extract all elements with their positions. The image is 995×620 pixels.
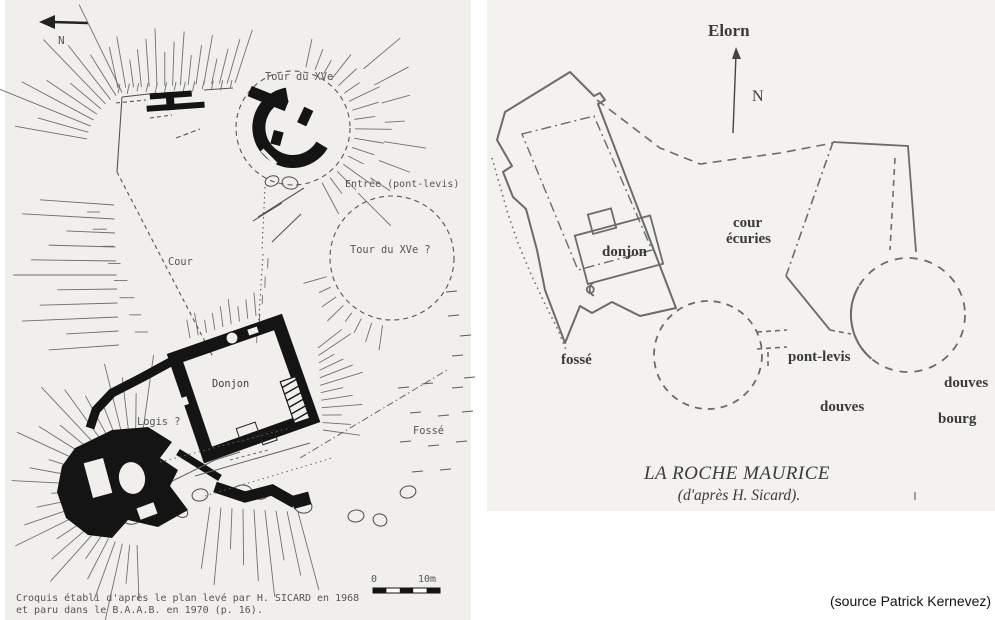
label-douves-bourg-line2: bourg — [938, 411, 977, 427]
label-tour-xve-q: Tour du XVe ? — [350, 244, 431, 256]
label-logis: Logis ? — [137, 416, 180, 428]
right-plan: Elorn N donjon — [487, 0, 995, 511]
label-donjon-right: donjon — [602, 244, 648, 260]
label-cour-line2: écuries — [726, 231, 771, 247]
left-plan: N — [0, 0, 475, 620]
label-douves-bourg-line1: douves — [944, 375, 988, 391]
label-cour: Cour — [168, 256, 193, 268]
north-label-right: N — [752, 88, 764, 105]
caption-line1: Croquis établi d'après le plan levé par … — [16, 592, 359, 604]
label-douves: douves — [820, 399, 864, 415]
north-label-left: N — [58, 34, 65, 47]
plan-subtitle: (d'après H. Sicard). — [678, 487, 800, 504]
river-label: Elorn — [708, 21, 750, 40]
caption-line2: et paru dans le B.A.A.B. en 1970 (p. 16)… — [16, 605, 263, 616]
scale-ten: 10m — [418, 574, 436, 585]
label-entree: Entrée (pont-levis) — [345, 178, 459, 190]
scanned-page: N — [0, 0, 995, 620]
label-fosse-left: Fossé — [413, 425, 444, 437]
label-cour-line1: cour — [733, 215, 763, 231]
plan-title: LA ROCHE MAURICE — [643, 463, 830, 484]
castle-plans-drawing: N — [0, 0, 995, 620]
label-donjon-left: Donjon — [212, 378, 249, 390]
source-credit: (source Patrick Kernevez) — [830, 593, 991, 609]
label-fosse-right: fossé — [561, 352, 592, 368]
scale-zero: 0 — [371, 574, 377, 585]
label-tour-xve: Tour du XVe — [265, 71, 333, 83]
label-pont-levis: pont-levis — [788, 349, 851, 365]
